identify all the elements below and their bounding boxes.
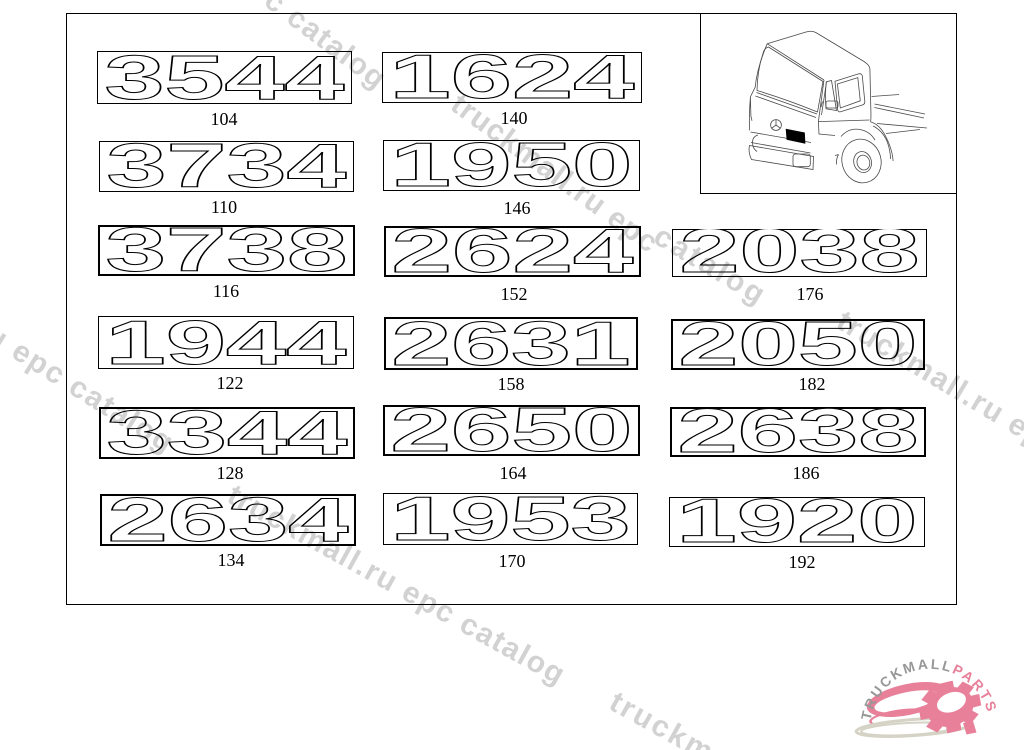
- svg-text:2638: 2638: [678, 407, 919, 457]
- svg-text:3544: 3544: [105, 51, 346, 104]
- svg-text:3738: 3738: [106, 225, 348, 276]
- svg-text:2631: 2631: [392, 317, 631, 370]
- svg-text:2624: 2624: [392, 226, 635, 277]
- svg-text:1944: 1944: [106, 316, 348, 369]
- svg-text:1953: 1953: [391, 493, 631, 545]
- svg-text:1624: 1624: [390, 52, 636, 103]
- svg-text:3734: 3734: [107, 141, 348, 192]
- svg-text:2650: 2650: [391, 405, 633, 456]
- svg-text:1920: 1920: [677, 497, 918, 547]
